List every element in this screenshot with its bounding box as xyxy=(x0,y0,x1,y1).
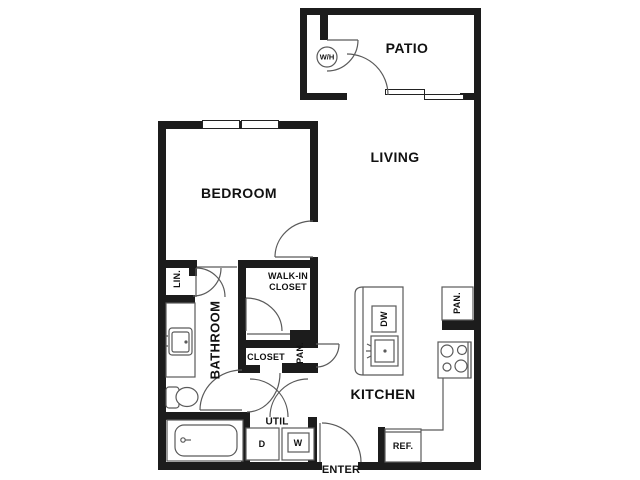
room-label-closet: CLOSET xyxy=(247,352,285,362)
plan-linework xyxy=(0,0,640,480)
room-label-kitchen: KITCHEN xyxy=(350,386,415,402)
kitchen-counter-edge xyxy=(421,378,443,430)
bedroom-door-arc xyxy=(275,221,313,257)
label-refrigerator: REF. xyxy=(393,441,413,451)
stove-icon xyxy=(438,342,471,378)
floor-plan: PATIO LIVING BEDROOM KITCHEN BATHROOM WA… xyxy=(0,0,640,480)
room-label-walk-in-closet: WALK-IN CLOSET xyxy=(268,271,308,294)
label-dishwasher: DW xyxy=(379,311,389,326)
room-label-living: LIVING xyxy=(370,149,419,165)
label-enter: ENTER xyxy=(322,464,360,476)
walk-in-line2: CLOSET xyxy=(268,282,308,293)
room-label-util: UTIL xyxy=(265,417,288,428)
kitchen-island xyxy=(355,287,403,375)
entry-door-arc xyxy=(320,423,361,462)
walk-in-line1: WALK-IN xyxy=(268,271,308,282)
bathroom-vanity xyxy=(166,303,195,377)
label-dryer: D xyxy=(259,439,266,449)
label-water-heater: W/H xyxy=(320,53,335,62)
label-pantry-hall: PAN. xyxy=(295,342,305,364)
label-pantry-kitchen: PAN. xyxy=(452,292,462,314)
patio-door-arc xyxy=(347,54,388,95)
label-linen: LIN. xyxy=(172,270,182,288)
walkin-closet-door-arc xyxy=(246,298,290,334)
room-label-bedroom: BEDROOM xyxy=(201,185,277,201)
room-label-patio: PATIO xyxy=(386,40,429,56)
label-washer: W xyxy=(294,438,303,448)
room-label-bathroom: BATHROOM xyxy=(208,301,223,380)
kitchen-sink-icon xyxy=(366,336,398,366)
toilet-icon xyxy=(166,387,198,408)
bathtub-icon xyxy=(167,420,243,461)
linen-door-arcs xyxy=(193,267,237,297)
pantry-door-arc xyxy=(316,344,339,367)
